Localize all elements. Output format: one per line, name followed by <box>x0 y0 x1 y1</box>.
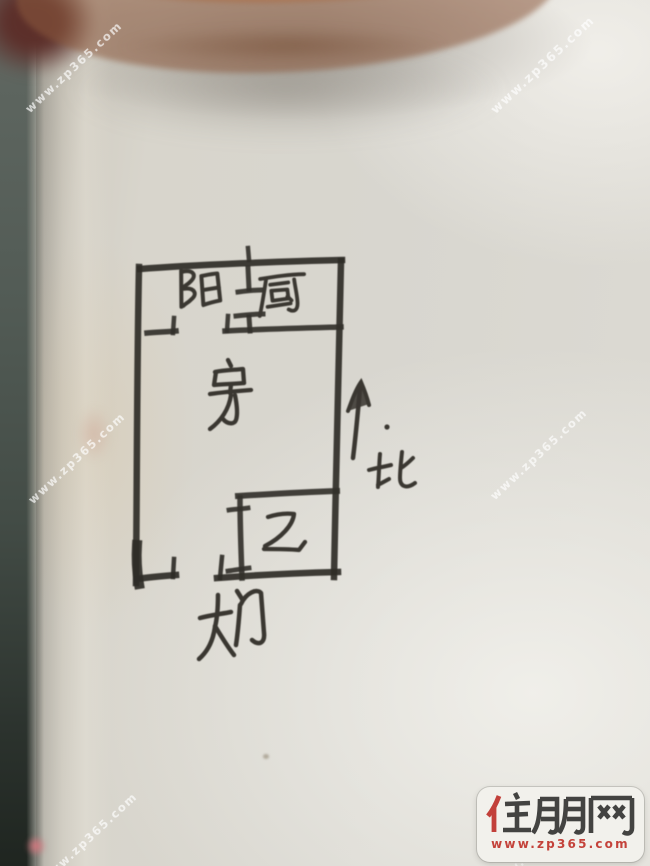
label-north-glyph <box>369 452 415 487</box>
interior-walls <box>147 316 341 333</box>
north-arrow <box>348 381 390 458</box>
logo-brand-red-radical <box>488 796 499 832</box>
label-room-glyph <box>210 360 251 429</box>
logo-url: www.zp365.com <box>491 837 630 851</box>
photo: www.zp365.com www.zp365.com www.zp365.co… <box>0 0 650 866</box>
label-balcony-glyph <box>180 269 220 306</box>
label-bathroom-glyph <box>264 514 305 550</box>
label-entrance-glyph <box>199 591 264 659</box>
label-kitchen-glyph <box>259 274 305 316</box>
logo-badge: www.zp365.com <box>477 787 644 862</box>
logo-brand-dark-strokes <box>503 793 632 833</box>
logo-brand-glyph <box>485 791 637 837</box>
